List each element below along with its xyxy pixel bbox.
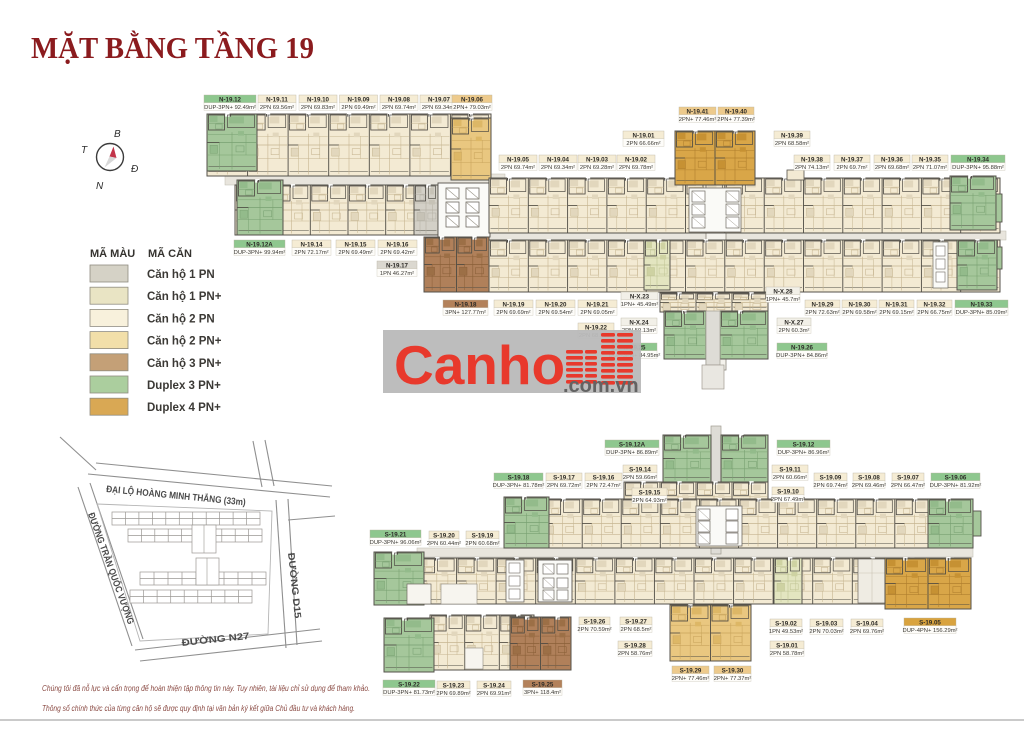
svg-text:S-19.23: S-19.23 (443, 682, 465, 689)
svg-text:Căn hộ 3 PN+: Căn hộ 3 PN+ (147, 358, 222, 370)
svg-text:S-19.30: S-19.30 (722, 667, 744, 674)
svg-text:2PN 66.47m²: 2PN 66.47m² (891, 483, 925, 489)
svg-text:N-19.17: N-19.17 (386, 262, 409, 269)
svg-text:2PN 69.49m²: 2PN 69.49m² (341, 105, 375, 111)
svg-text:S-19.26: S-19.26 (584, 618, 606, 625)
svg-text:DUP-3PN+ 99.94m²: DUP-3PN+ 99.94m² (234, 250, 286, 256)
svg-text:N-19.09: N-19.09 (347, 96, 370, 103)
svg-text:DUP-3PN+ 85.09m²: DUP-3PN+ 85.09m² (956, 310, 1008, 316)
svg-text:3PN+ 127.77m²: 3PN+ 127.77m² (445, 310, 486, 316)
svg-text:N-19.32: N-19.32 (923, 301, 946, 308)
svg-text:S-19.01: S-19.01 (776, 642, 798, 649)
svg-text:N-19.12: N-19.12 (219, 96, 242, 103)
svg-text:2PN 60.44m²: 2PN 60.44m² (427, 541, 461, 547)
svg-text:S-19.11: S-19.11 (779, 466, 801, 473)
svg-text:2PN 68.5m²: 2PN 68.5m² (621, 627, 652, 633)
svg-text:S-19.24: S-19.24 (483, 682, 505, 689)
svg-text:N-19.19: N-19.19 (502, 301, 525, 308)
svg-text:.com.vn: .com.vn (563, 375, 639, 397)
svg-text:N-19.15: N-19.15 (344, 241, 367, 248)
svg-text:S-19.17: S-19.17 (553, 474, 575, 481)
svg-text:2PN 69.15m²: 2PN 69.15m² (879, 310, 913, 316)
svg-text:2PN 69.68m²: 2PN 69.68m² (875, 165, 909, 171)
svg-text:2PN 70.59m²: 2PN 70.59m² (577, 627, 611, 633)
svg-text:N-19.20: N-19.20 (544, 301, 567, 308)
svg-text:2PN 66.75m²: 2PN 66.75m² (917, 310, 951, 316)
svg-text:2PN 60.68m²: 2PN 60.68m² (465, 541, 499, 547)
svg-text:N-19.10: N-19.10 (307, 96, 330, 103)
svg-text:DUP-3PN+ 96.06m²: DUP-3PN+ 96.06m² (370, 540, 422, 546)
svg-text:2PN 69.91m²: 2PN 69.91m² (477, 691, 511, 697)
svg-text:2PN+ 77.39m²: 2PN+ 77.39m² (717, 117, 755, 123)
svg-text:S-19.22: S-19.22 (398, 681, 420, 688)
svg-text:2PN 69.89m²: 2PN 69.89m² (436, 691, 470, 697)
svg-text:S-19.04: S-19.04 (856, 620, 878, 627)
svg-text:DUP-4PN+ 156.29m²: DUP-4PN+ 156.29m² (903, 628, 958, 634)
svg-text:DUP-3PN+ 86.96m²: DUP-3PN+ 86.96m² (778, 450, 830, 456)
svg-text:N-19.38: N-19.38 (801, 156, 824, 163)
svg-text:2PN 69.74m²: 2PN 69.74m² (382, 105, 416, 111)
svg-text:2PN 69.46m²: 2PN 69.46m² (852, 483, 886, 489)
svg-text:N-19.06: N-19.06 (461, 96, 484, 103)
svg-text:S-19.07: S-19.07 (897, 474, 919, 481)
svg-text:N-X.27: N-X.27 (784, 319, 804, 326)
svg-text:2PN 67.49m²: 2PN 67.49m² (771, 497, 805, 503)
svg-text:S-19.16: S-19.16 (593, 474, 615, 481)
svg-text:N-19.31: N-19.31 (885, 301, 908, 308)
svg-text:2PN 69.78m²: 2PN 69.78m² (619, 165, 653, 171)
svg-text:2PN+ 79.03m²: 2PN+ 79.03m² (453, 105, 491, 111)
svg-text:N-19.16: N-19.16 (386, 241, 409, 248)
svg-text:N-19.39: N-19.39 (781, 132, 804, 139)
svg-text:N: N (96, 181, 104, 192)
svg-text:S-19.20: S-19.20 (433, 532, 455, 539)
svg-text:N-19.07: N-19.07 (428, 96, 451, 103)
svg-text:N-19.29: N-19.29 (811, 301, 834, 308)
svg-text:2PN 69.49m²: 2PN 69.49m² (338, 250, 372, 256)
svg-text:Duplex 4 PN+: Duplex 4 PN+ (147, 402, 221, 414)
svg-text:S-19.09: S-19.09 (820, 474, 842, 481)
svg-text:S-19.28: S-19.28 (624, 642, 646, 649)
svg-text:2PN 69.76m²: 2PN 69.76m² (850, 629, 884, 635)
svg-text:Căn hộ 1 PN+: Căn hộ 1 PN+ (147, 291, 222, 303)
svg-text:S-19.21: S-19.21 (385, 531, 407, 538)
svg-text:2PN 69.56m²: 2PN 69.56m² (260, 105, 294, 111)
svg-text:N-19.35: N-19.35 (919, 156, 942, 163)
svg-text:N-19.04: N-19.04 (547, 156, 570, 163)
svg-text:2PN 60.3m²: 2PN 60.3m² (779, 328, 810, 334)
svg-text:2PN 71.07m²: 2PN 71.07m² (913, 165, 947, 171)
svg-text:N-19.11: N-19.11 (266, 96, 288, 103)
svg-text:N-19.33: N-19.33 (970, 301, 993, 308)
svg-text:1PN+ 45.7m²: 1PN+ 45.7m² (766, 297, 800, 303)
svg-text:S-19.12A: S-19.12A (619, 441, 646, 448)
svg-text:T: T (81, 145, 88, 156)
svg-text:2PN 68.58m²: 2PN 68.58m² (775, 141, 809, 147)
svg-text:Căn hộ 2 PN+: Căn hộ 2 PN+ (147, 336, 222, 348)
svg-text:2PN+ 77.46m²: 2PN+ 77.46m² (672, 676, 710, 682)
svg-text:S-19.05: S-19.05 (919, 619, 941, 626)
svg-text:DUP-3PN+ 95.88m²: DUP-3PN+ 95.88m² (952, 165, 1004, 171)
svg-text:N-19.14: N-19.14 (300, 241, 323, 248)
svg-text:N-X.28: N-X.28 (773, 288, 793, 295)
svg-text:2PN 69.7m²: 2PN 69.7m² (837, 165, 868, 171)
svg-text:2PN 70.03m²: 2PN 70.03m² (809, 629, 843, 635)
svg-text:S-19.12: S-19.12 (793, 441, 815, 448)
svg-text:Canho: Canho (394, 334, 565, 396)
svg-text:2PN 69.58m²: 2PN 69.58m² (842, 310, 876, 316)
svg-text:S-19.25: S-19.25 (532, 681, 554, 688)
svg-text:2PN 72.63m²: 2PN 72.63m² (805, 310, 839, 316)
svg-text:2PN 64.93m²: 2PN 64.93m² (632, 498, 666, 504)
svg-text:N-19.37: N-19.37 (841, 156, 864, 163)
svg-text:Căn hộ 2 PN: Căn hộ 2 PN (147, 313, 215, 325)
svg-text:N-19.08: N-19.08 (388, 96, 411, 103)
svg-text:Thông số chính thức của từng c: Thông số chính thức của từng căn hộ sẽ đ… (42, 704, 355, 713)
svg-text:2PN 69.05m²: 2PN 69.05m² (580, 310, 614, 316)
svg-text:3PN+ 118.4m²: 3PN+ 118.4m² (524, 690, 561, 696)
svg-text:MÃ MÀU: MÃ MÀU (90, 247, 135, 260)
svg-text:S-19.19: S-19.19 (472, 532, 494, 539)
svg-text:MÃ CĂN: MÃ CĂN (148, 247, 192, 260)
svg-text:2PN+ 77.37m²: 2PN+ 77.37m² (714, 676, 752, 682)
svg-text:DUP-3PN+ 86.89m²: DUP-3PN+ 86.89m² (606, 450, 658, 456)
svg-text:2PN 60.66m²: 2PN 60.66m² (773, 475, 807, 481)
svg-text:S-19.15: S-19.15 (639, 489, 661, 496)
svg-text:2PN 69.74m²: 2PN 69.74m² (813, 483, 847, 489)
svg-text:2PN 69.34m²: 2PN 69.34m² (422, 105, 456, 111)
svg-text:1PN+ 45.49m²: 1PN+ 45.49m² (621, 302, 659, 308)
svg-text:DUP-3PN+ 81.78m²: DUP-3PN+ 81.78m² (493, 483, 545, 489)
svg-text:2PN 58.78m²: 2PN 58.78m² (770, 651, 804, 657)
svg-text:B: B (114, 129, 121, 140)
svg-text:N-19.18: N-19.18 (454, 301, 477, 308)
svg-text:DUP-3PN+ 92.49m²: DUP-3PN+ 92.49m² (204, 105, 256, 111)
svg-text:S-19.10: S-19.10 (777, 488, 799, 495)
svg-text:2PN 59.66m²: 2PN 59.66m² (623, 475, 657, 481)
svg-text:N-19.41: N-19.41 (686, 108, 709, 115)
svg-text:N-19.26: N-19.26 (791, 344, 814, 351)
svg-text:S-19.14: S-19.14 (629, 466, 651, 473)
svg-text:Duplex 3 PN+: Duplex 3 PN+ (147, 380, 221, 392)
svg-text:2PN 69.54m²: 2PN 69.54m² (538, 310, 572, 316)
svg-text:2PN 69.72m²: 2PN 69.72m² (547, 483, 581, 489)
svg-text:2PN+ 77.46m²: 2PN+ 77.46m² (679, 117, 717, 123)
svg-text:S-19.27: S-19.27 (625, 618, 647, 625)
svg-text:N-19.01: N-19.01 (632, 132, 655, 139)
svg-text:N-19.05: N-19.05 (507, 156, 530, 163)
svg-text:N-X.24: N-X.24 (629, 319, 649, 326)
svg-text:MẶT BẰNG TẦNG 19: MẶT BẰNG TẦNG 19 (31, 29, 314, 65)
svg-text:2PN 69.83m²: 2PN 69.83m² (301, 105, 335, 111)
svg-text:S-19.03: S-19.03 (816, 620, 838, 627)
svg-text:DUP-3PN+ 84.86m²: DUP-3PN+ 84.86m² (776, 353, 828, 359)
svg-text:S-19.18: S-19.18 (508, 474, 530, 481)
svg-text:N-19.02: N-19.02 (625, 156, 648, 163)
svg-text:S-19.29: S-19.29 (680, 667, 702, 674)
svg-text:N-X.23: N-X.23 (630, 293, 650, 300)
svg-text:2PN 72.17m²: 2PN 72.17m² (294, 250, 328, 256)
svg-text:1PN 46.27m²: 1PN 46.27m² (380, 271, 414, 277)
svg-text:N-19.21: N-19.21 (586, 301, 609, 308)
svg-text:Chúng tôi đã nỗ lực và cẩn trọ: Chúng tôi đã nỗ lực và cẩn trọng để hoàn… (42, 684, 370, 693)
svg-text:DUP-3PN+ 81.92m²: DUP-3PN+ 81.92m² (930, 483, 982, 489)
svg-text:Đ: Đ (131, 164, 138, 175)
svg-text:N-19.40: N-19.40 (725, 108, 748, 115)
svg-text:2PN 72.47m²: 2PN 72.47m² (586, 483, 620, 489)
svg-text:N-19.36: N-19.36 (881, 156, 904, 163)
svg-text:S-19.06: S-19.06 (945, 474, 967, 481)
svg-text:DUP-3PN+ 81.73m²: DUP-3PN+ 81.73m² (383, 690, 435, 696)
svg-text:N-19.30: N-19.30 (848, 301, 871, 308)
svg-text:2PN 69.42m²: 2PN 69.42m² (380, 250, 414, 256)
svg-text:N-19.12A: N-19.12A (246, 241, 273, 248)
svg-text:N-19.34: N-19.34 (967, 156, 990, 163)
svg-text:2PN 66.66m²: 2PN 66.66m² (626, 141, 660, 147)
svg-text:2PN 69.34m²: 2PN 69.34m² (541, 165, 575, 171)
svg-text:2PN 74.13m²: 2PN 74.13m² (795, 165, 829, 171)
svg-text:S-19.08: S-19.08 (858, 474, 880, 481)
svg-text:2PN 69.28m²: 2PN 69.28m² (580, 165, 614, 171)
svg-text:S-19.02: S-19.02 (775, 620, 797, 627)
svg-text:2PN 58.76m²: 2PN 58.76m² (618, 651, 652, 657)
svg-text:N-19.03: N-19.03 (586, 156, 609, 163)
svg-text:1PN 49.53m²: 1PN 49.53m² (769, 629, 803, 635)
svg-text:Căn hộ 1 PN: Căn hộ 1 PN (147, 269, 215, 281)
svg-text:2PN 69.69m²: 2PN 69.69m² (496, 310, 530, 316)
svg-text:2PN 69.74m²: 2PN 69.74m² (501, 165, 535, 171)
